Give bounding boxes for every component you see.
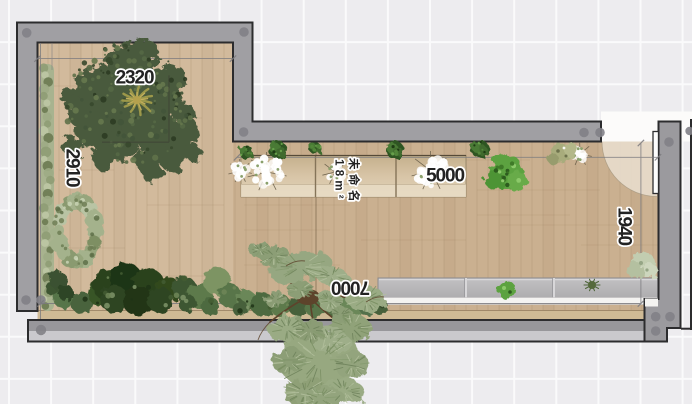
svg-text:2320: 2320 — [116, 68, 154, 89]
svg-text:未命名: 未命名 — [347, 157, 361, 206]
svg-text:1940: 1940 — [613, 207, 634, 245]
svg-text:7000: 7000 — [332, 277, 370, 298]
svg-text:18m²: 18m² — [332, 159, 344, 203]
svg-text:5000: 5000 — [426, 166, 464, 187]
svg-text:2910: 2910 — [62, 149, 83, 187]
